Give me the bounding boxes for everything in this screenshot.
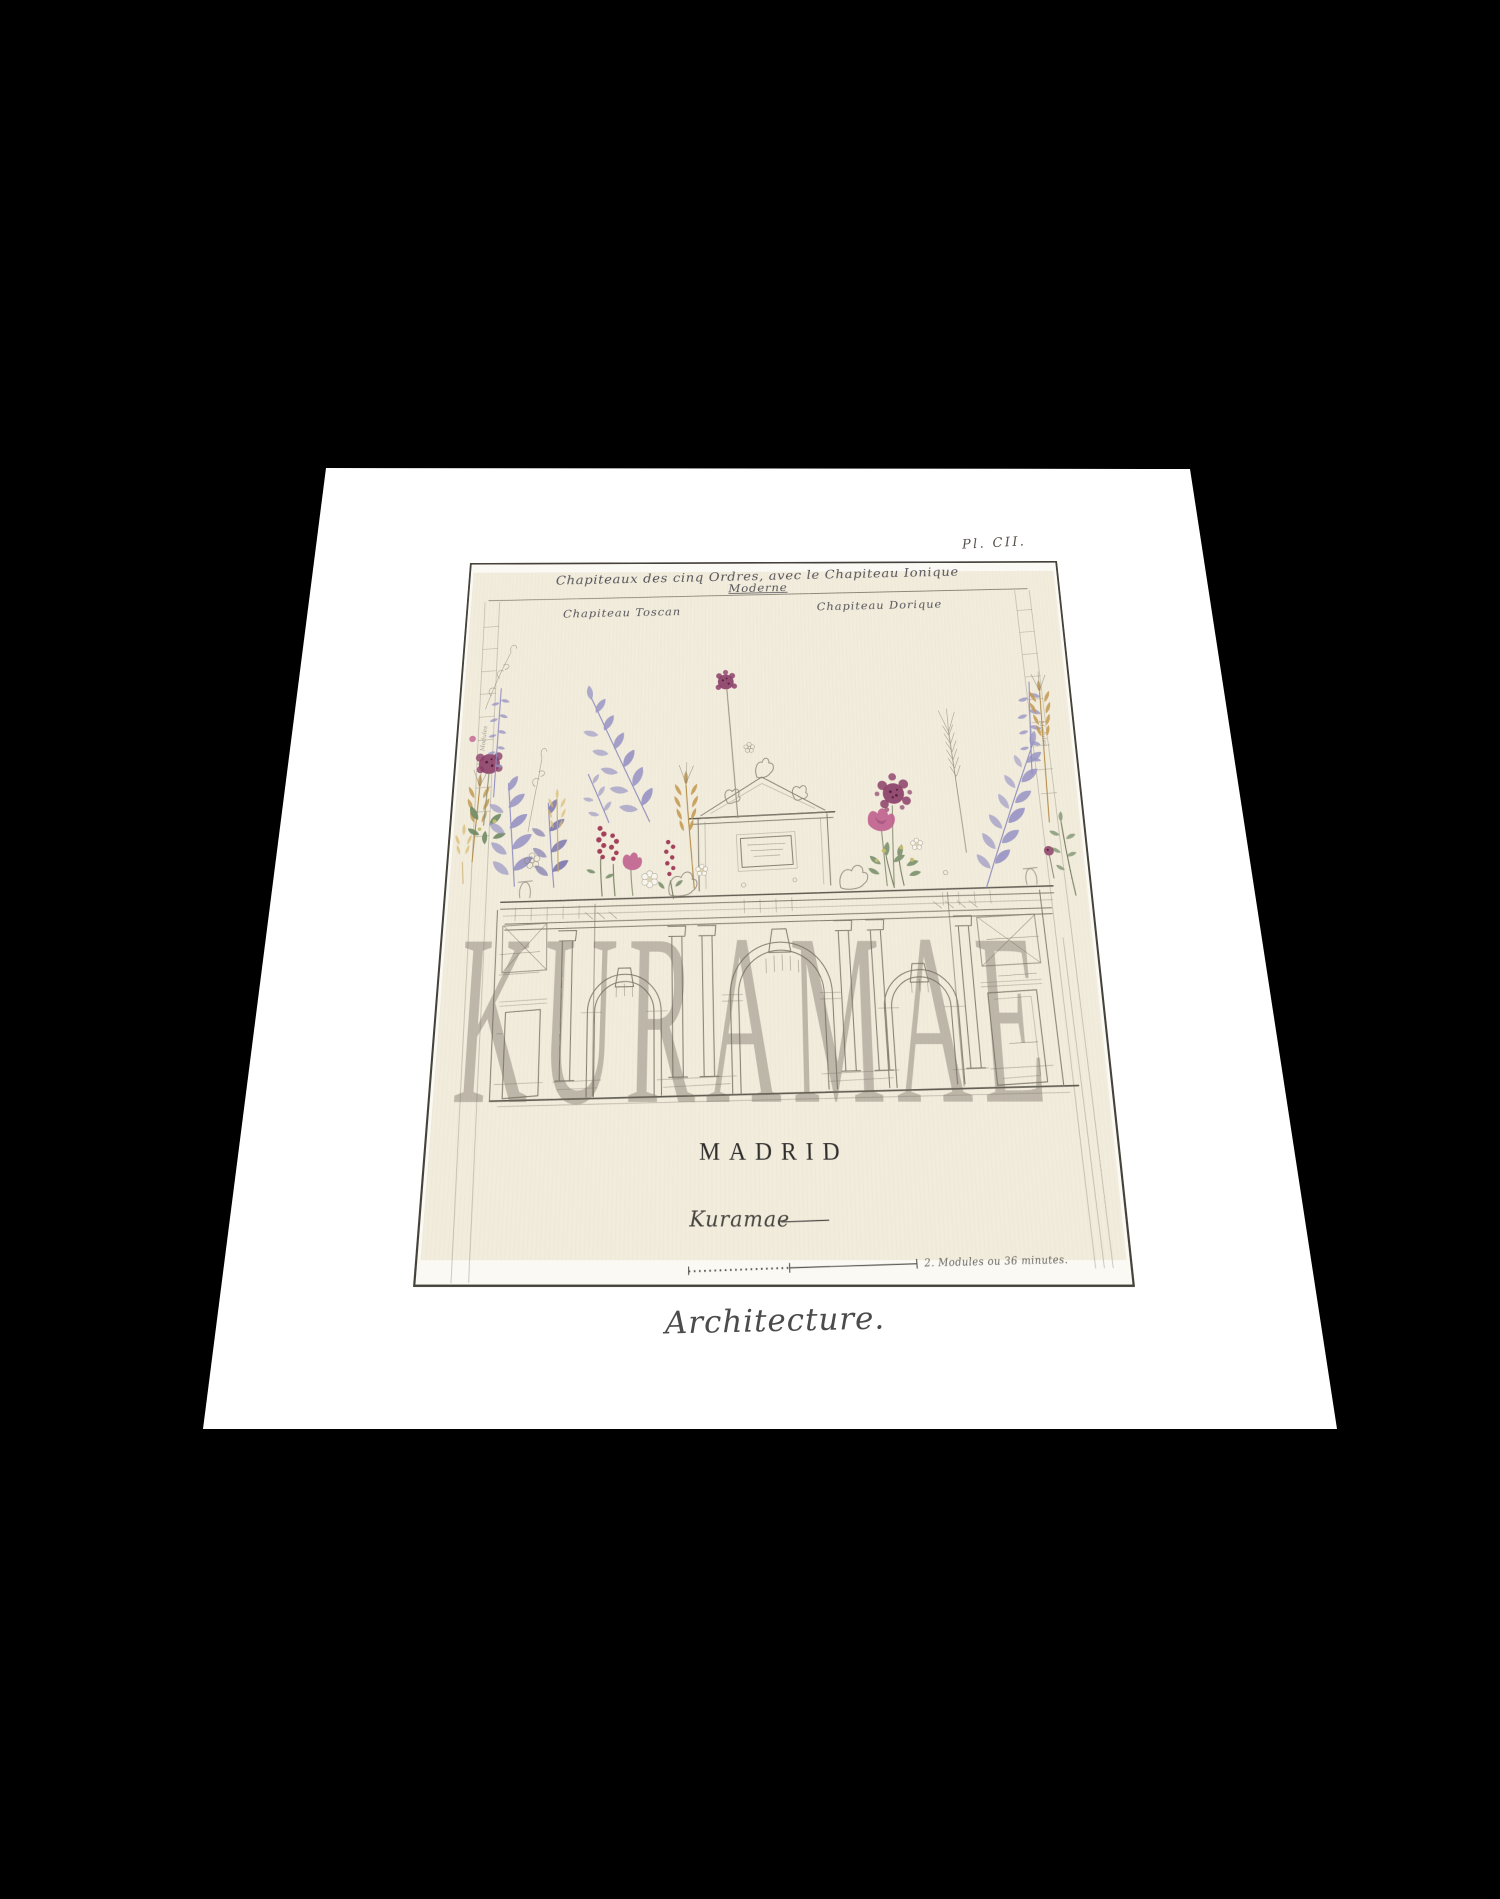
mockup-canvas: { "artwork": { "plate_number": "Pl. CII.… (0, 0, 1500, 1899)
ruled-margins: Modules Modules (451, 589, 1114, 1283)
architecture-sketch: Modules Modules (424, 557, 1141, 1292)
daisy-flower-icon (910, 838, 923, 850)
lavender-sprig-icon (485, 688, 510, 797)
floral-left-margin (452, 688, 513, 883)
wine-spike-flower-icon (657, 840, 684, 899)
snapdragon-flower-icon (608, 833, 619, 896)
tulip-flower-icon (867, 808, 900, 886)
ink-daisy-icon (744, 742, 755, 752)
lavender-sprig-icon (582, 773, 613, 824)
daisy-flower-icon (696, 864, 708, 876)
artist-signature: Kuramae (595, 1206, 923, 1232)
scale-bar (689, 1259, 918, 1275)
floral-left-cluster (483, 762, 708, 903)
ink-wheat-icon (938, 708, 968, 853)
city-title: MADRID (554, 1137, 985, 1167)
engraving-layer: Chapiteaux des cinq Ordres, avec le Chap… (424, 557, 1141, 1293)
tulip-flower-icon (622, 852, 642, 895)
lavender-branch-icon (581, 684, 656, 823)
floral-right-cluster (857, 707, 1059, 890)
lavender-plant-icon (484, 774, 538, 887)
floral-center (581, 669, 757, 823)
vintage-print-plate: Chapiteaux des cinq Ordres, avec le Chap… (413, 561, 1135, 1287)
margin-note-left: Modules (479, 725, 489, 752)
daisy-flower-icon (642, 871, 658, 888)
tall-allium-flower-icon (715, 670, 740, 818)
